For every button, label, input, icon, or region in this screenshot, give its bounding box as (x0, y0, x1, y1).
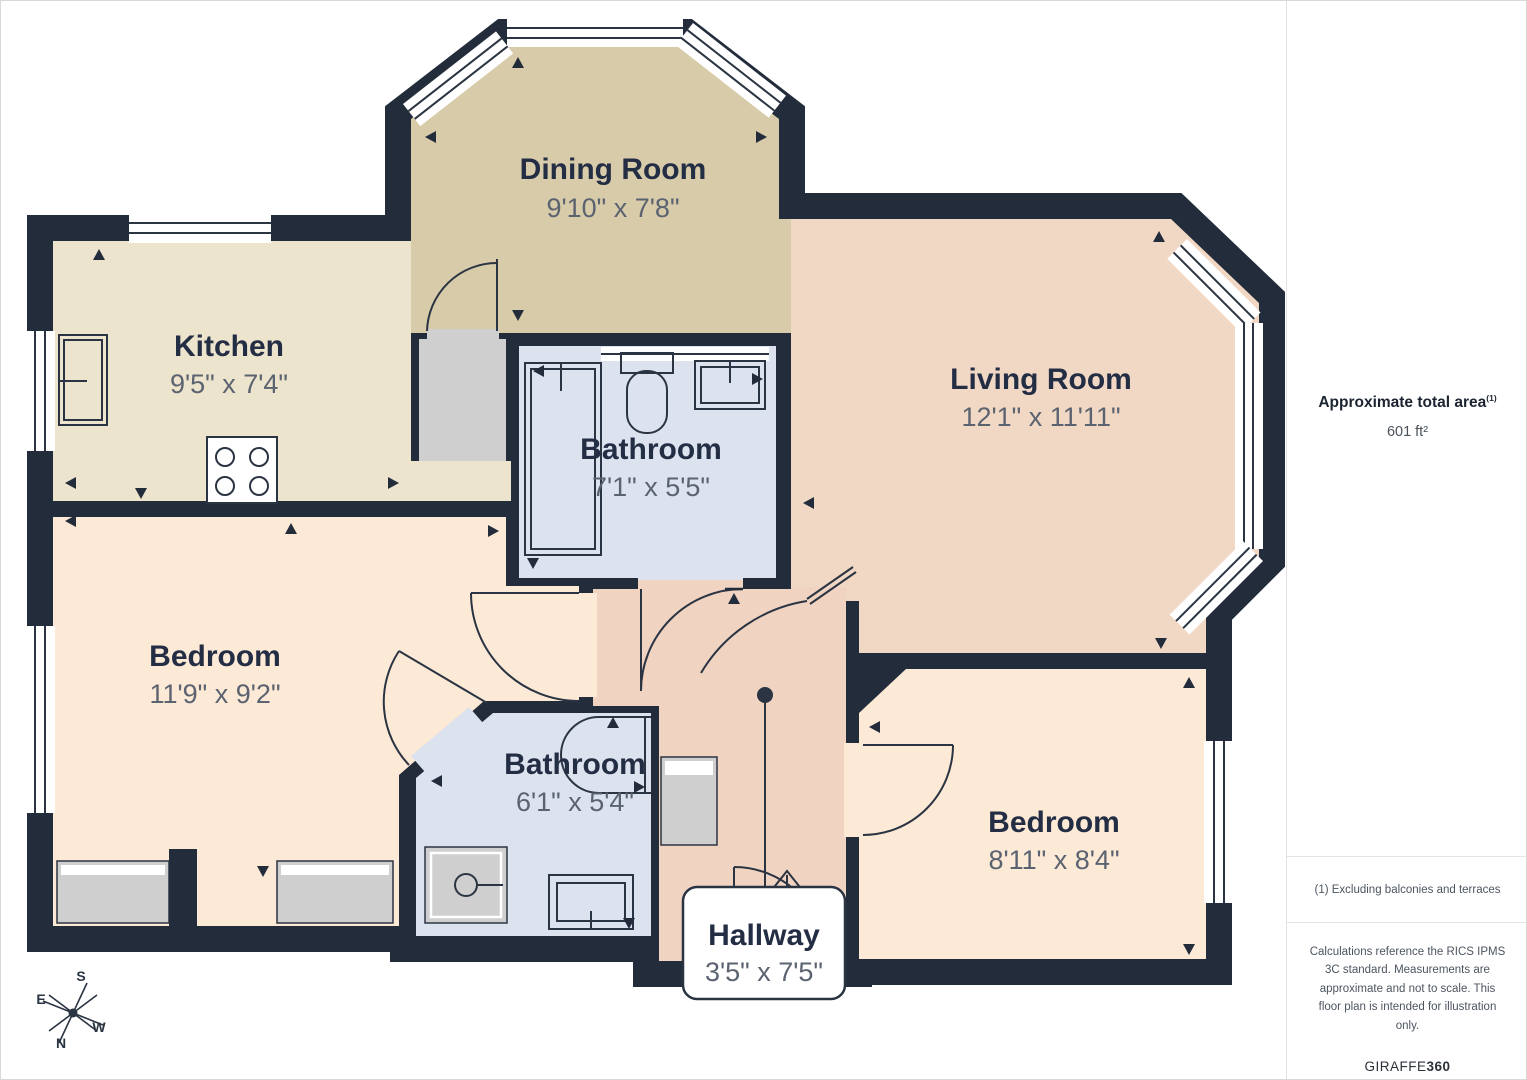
shower-icon (425, 847, 507, 923)
brand-name: GIRAFFE (1364, 1059, 1426, 1074)
total-area-label: Approximate total area(1) (1318, 393, 1496, 412)
room-dims-bathroom-1: 7'1" x 5'5" (592, 472, 710, 502)
total-area-text: Approximate total area (1318, 394, 1486, 411)
brand-logo: GIRAFFE360 (1307, 1059, 1508, 1074)
compass-east-label: E (36, 991, 45, 1007)
window (129, 213, 271, 243)
room-label-bedroom-1: Bedroom (149, 640, 281, 673)
wardrobe-icon (277, 861, 393, 923)
disclaimer-text: Calculations reference the RICS IPMS 3C … (1307, 943, 1508, 1035)
room-dims-bathroom-2: 6'1" x 5'4" (516, 787, 634, 817)
window (507, 19, 683, 47)
floor-plan: Dining Room 9'10" x 7'8" Kitchen 9'5" x … (1, 1, 1286, 1080)
room-dims-hallway: 3'5" x 7'5" (705, 957, 823, 987)
disclaimer-section: Calculations reference the RICS IPMS 3C … (1287, 923, 1527, 1074)
window (1235, 323, 1263, 549)
compass-west-label: W (92, 1019, 106, 1035)
room-dims-bedroom-2: 8'11" x 8'4" (988, 845, 1119, 875)
wall-stub (169, 849, 197, 927)
stove-icon (207, 437, 277, 503)
room-dims-kitchen: 9'5" x 7'4" (170, 369, 288, 399)
brand-suffix: 360 (1426, 1059, 1450, 1074)
compass-icon: S E W N (36, 968, 106, 1051)
room-label-bathroom-2: Bathroom (504, 748, 646, 781)
window (25, 331, 55, 451)
footnote-section: (1) Excluding balconies and terraces (1287, 857, 1527, 923)
wardrobe-icon (57, 861, 169, 923)
closet-icon (661, 757, 717, 845)
room-dims-bedroom-1: 11'9" x 9'2" (149, 679, 280, 709)
info-sidebar: Approximate total area(1) 601 ft² (1) Ex… (1286, 1, 1527, 1080)
footnote-marker: (1) (1486, 393, 1496, 403)
room-label-bedroom-2: Bedroom (988, 806, 1120, 839)
compass-south-label: S (76, 968, 85, 984)
room-dims-dining: 9'10" x 7'8" (546, 193, 679, 223)
window (25, 626, 55, 813)
living-room-floor (791, 219, 1259, 653)
room-label-hallway: Hallway (708, 919, 820, 952)
total-area-value: 601 ft² (1318, 424, 1496, 440)
vestibule-floor (419, 339, 506, 461)
footnote-text: (1) Excluding balconies and terraces (1300, 884, 1514, 896)
room-label-bathroom-1: Bathroom (580, 433, 722, 466)
window (1204, 741, 1234, 903)
floorplan-page: Dining Room 9'10" x 7'8" Kitchen 9'5" x … (0, 0, 1527, 1080)
room-label-dining: Dining Room (520, 153, 707, 186)
room-label-living: Living Room (950, 363, 1132, 396)
room-dims-living: 12'1" x 11'11" (961, 402, 1120, 432)
total-area-section: Approximate total area(1) 601 ft² (1287, 1, 1527, 857)
compass-north-label: N (56, 1035, 66, 1051)
room-label-kitchen: Kitchen (174, 330, 284, 363)
